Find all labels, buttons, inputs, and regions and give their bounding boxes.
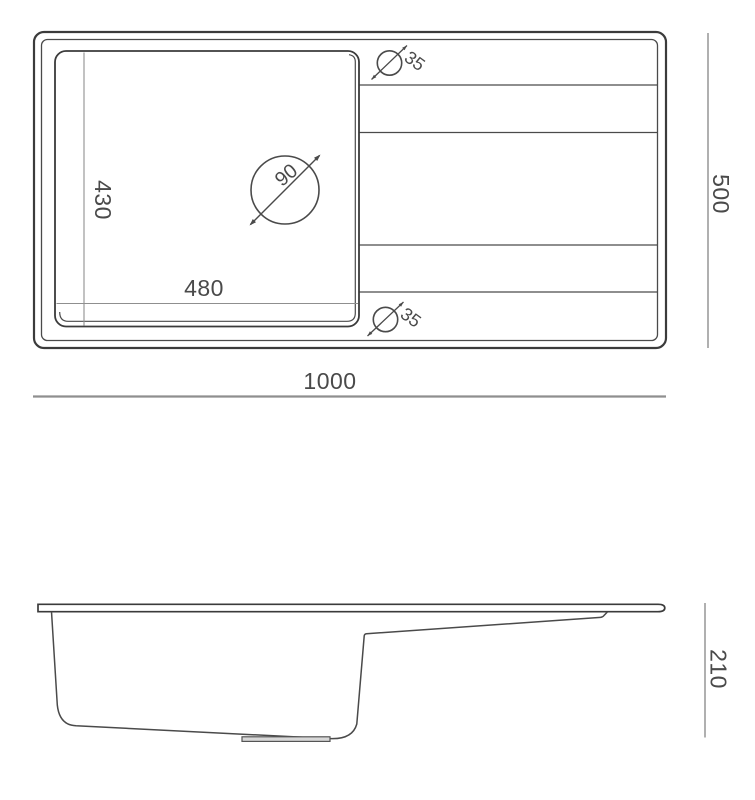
rim-slab-profile: [38, 604, 665, 611]
top-view: 430 480 90 35 35 500 1000: [33, 32, 734, 397]
sink-technical-drawing: 430 480 90 35 35 500 1000 210: [0, 0, 755, 800]
bowl-section-profile: [52, 612, 608, 739]
side-view: 210: [38, 603, 731, 741]
bowl-depth-label: 430: [90, 180, 116, 220]
overall-height-label: 210: [705, 649, 731, 689]
overall-width-label: 1000: [303, 368, 356, 394]
drawing-svg: 430 480 90 35 35 500 1000 210: [0, 0, 755, 800]
drain-outlet-bar: [242, 737, 330, 742]
overall-depth-label: 500: [708, 174, 734, 214]
bowl-width-label: 480: [184, 275, 224, 301]
